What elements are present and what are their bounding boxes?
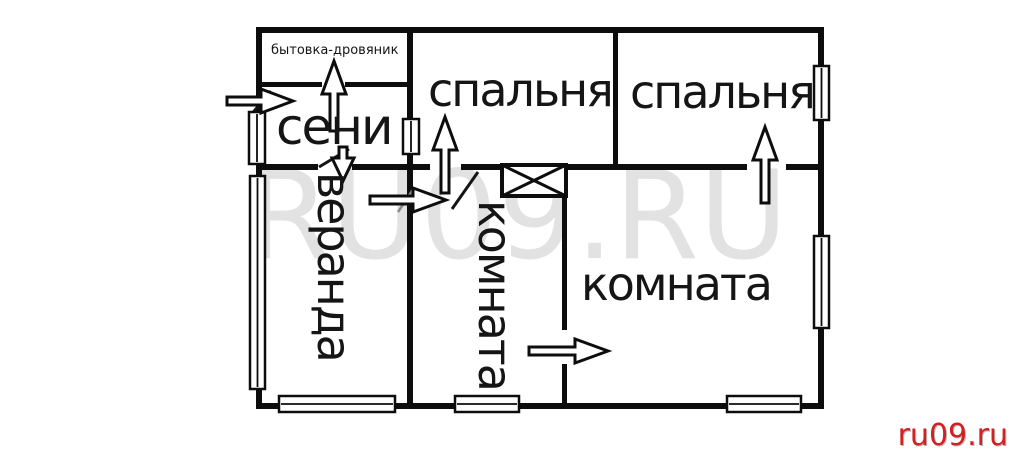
room-label-bedroom-1: спальня xyxy=(428,67,612,113)
bedroom-2-door-arrow-icon xyxy=(753,127,777,203)
room-label-veranda: веранда xyxy=(311,172,357,361)
room-label-main-room: комната xyxy=(581,261,771,307)
wall-utility-bottom-left xyxy=(256,82,322,87)
wall-mid-seg4 xyxy=(786,164,824,170)
room-label-inner-room: комната xyxy=(472,200,518,390)
floor-plan-image: RU09.RU xyxy=(0,0,1024,465)
wall-mid-seg2 xyxy=(352,164,430,170)
main-room-door-arrow-icon xyxy=(529,339,608,363)
room-label-bedroom-2: спальня xyxy=(630,69,814,115)
wall-utility-bottom-right xyxy=(345,82,413,87)
stove-crossed-box-icon xyxy=(502,165,566,196)
wall-top xyxy=(256,27,824,33)
room-label-utility: бытовка-дровяник xyxy=(271,44,398,57)
room-label-entry-hall: сени xyxy=(276,102,391,152)
wall-mainroom-lower xyxy=(562,364,567,405)
wall-bedroom-divider xyxy=(613,27,618,170)
bedroom-1-door-arrow-icon xyxy=(433,117,457,193)
site-credit-watermark: ru09.ru xyxy=(898,421,1008,451)
